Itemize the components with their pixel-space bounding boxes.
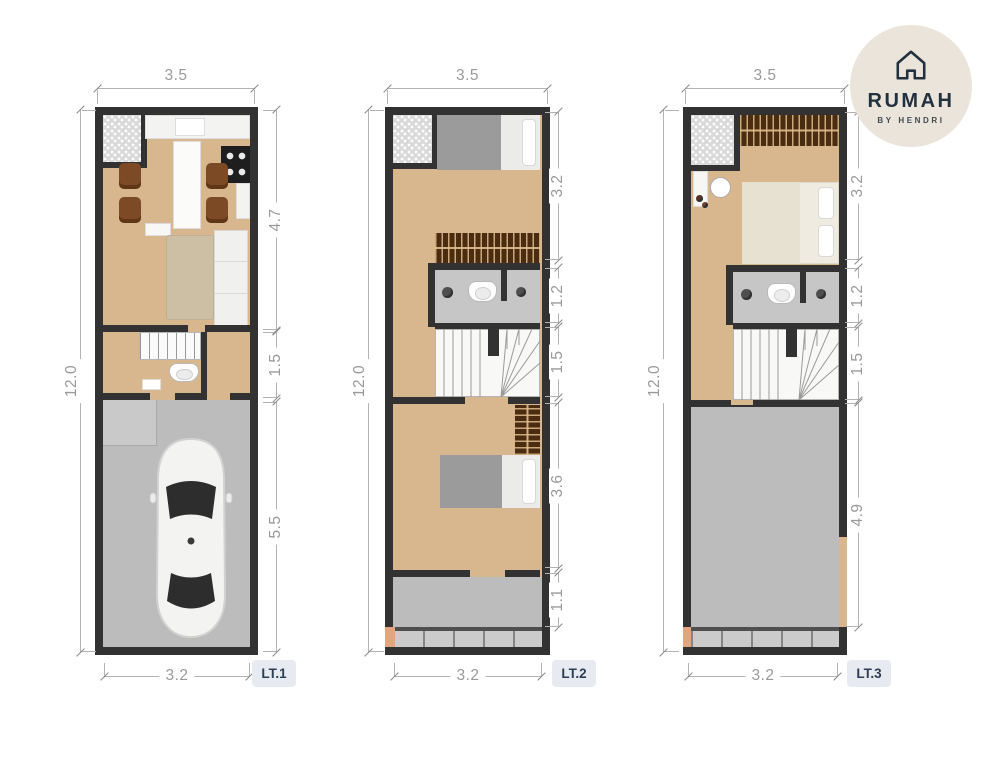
stairs — [435, 329, 540, 397]
dining-chair — [206, 163, 228, 189]
shower-partition — [800, 272, 806, 303]
dim-label: 3.2 — [450, 667, 485, 685]
bed-pillow — [522, 459, 536, 504]
interior-wall — [205, 325, 250, 332]
dim-right-lt2-b: 1.2 — [558, 268, 559, 323]
interior-wall — [753, 400, 839, 407]
interior-wall — [733, 265, 839, 272]
wardrobe — [515, 405, 540, 455]
floorplan-sheet: 3.5 3.5 3.5 3.2 3.2 3.2 12.0 12.0 12.0 4… — [0, 0, 1000, 763]
plant — [702, 202, 708, 208]
toilet — [767, 283, 796, 304]
interior-wall — [428, 263, 435, 327]
dim-left-lt2: 12.0 — [368, 110, 369, 652]
bed-blanket — [742, 182, 800, 264]
interior-wall — [393, 397, 465, 404]
dim-label: 3.5 — [164, 67, 187, 85]
bed-master — [742, 182, 839, 264]
dim-right-lt3-a: 3.2 — [858, 112, 859, 260]
balcony-floor — [393, 577, 542, 627]
dim-top-lt2: 3.5 — [387, 88, 548, 89]
dim-label: 5.5 — [267, 509, 285, 544]
dim-left-lt1: 12.0 — [80, 110, 81, 652]
dim-bottom-lt1: 3.2 — [104, 676, 250, 677]
dining-chair — [119, 197, 141, 223]
service-shaft — [393, 115, 438, 169]
sofa-chaise — [214, 230, 248, 326]
dim-label: 1.2 — [549, 278, 567, 313]
floor-badge-label: LT.1 — [261, 666, 286, 681]
dim-bottom-lt3: 3.2 — [688, 676, 838, 677]
kitchen-cabinet — [236, 183, 250, 219]
dim-label: 1.1 — [549, 582, 567, 617]
dim-label: 4.9 — [849, 497, 867, 532]
dim-label: 3.2 — [849, 168, 867, 203]
dim-right-lt3-c: 1.5 — [858, 327, 859, 400]
dim-label: 12.0 — [646, 359, 664, 403]
dim-right-lt1-b: 1.5 — [276, 332, 277, 398]
wardrobe — [435, 233, 540, 263]
stairs — [139, 332, 201, 360]
bath-sink — [442, 287, 453, 298]
balcony-planter — [385, 627, 395, 647]
dim-label: 3.6 — [549, 468, 567, 503]
terrace-railing — [691, 627, 839, 647]
interior-wall — [435, 263, 540, 270]
dim-label: 3.2 — [159, 667, 194, 685]
garage-wall — [230, 393, 250, 400]
interior-wall — [393, 570, 470, 577]
dim-top-lt1: 3.5 — [97, 88, 255, 89]
dim-right-lt2-c: 1.5 — [558, 327, 559, 397]
shower-head — [816, 289, 826, 299]
wardrobe — [740, 115, 839, 146]
bath-sink — [741, 289, 752, 300]
floor-badge-label: LT.2 — [561, 666, 586, 681]
dim-label: 12.0 — [351, 359, 369, 403]
bed — [437, 115, 540, 170]
side-table — [145, 223, 171, 236]
dining-chair — [119, 163, 141, 189]
floor-badge-lt1: LT.1 — [252, 660, 296, 687]
vanity-chair — [710, 177, 731, 198]
car — [149, 437, 233, 639]
dim-label: 4.7 — [267, 202, 285, 237]
floor-badge-lt2: LT.2 — [552, 660, 596, 687]
bed-pillow — [522, 119, 536, 166]
dim-right-lt1-c: 5.5 — [276, 402, 277, 652]
stairs — [733, 329, 839, 400]
bath-sink — [142, 379, 161, 390]
dim-label: 3.2 — [745, 667, 780, 685]
floorplan-lt2 — [385, 107, 550, 655]
dim-label: 12.0 — [63, 359, 81, 403]
floor-badge-lt3: LT.3 — [847, 660, 891, 687]
house-icon — [892, 48, 930, 87]
dim-label: 1.2 — [849, 278, 867, 313]
garage-wall — [175, 393, 207, 400]
dim-label: 3.5 — [753, 67, 776, 85]
dim-right-lt1-a: 4.7 — [276, 110, 277, 330]
dim-label: 3.5 — [456, 67, 479, 85]
dim-label: 3.2 — [549, 168, 567, 203]
bed-blanket — [440, 455, 502, 508]
floorplan-lt1 — [95, 107, 258, 655]
dining-table — [173, 141, 201, 229]
bed — [440, 455, 540, 508]
dim-left-lt3: 12.0 — [663, 110, 664, 652]
bed-pillow — [818, 225, 834, 257]
bed-blanket — [437, 115, 501, 170]
shower-partition — [501, 270, 507, 301]
balcony-railing — [393, 627, 542, 647]
dim-label: 1.5 — [549, 344, 567, 379]
dim-right-lt3-b: 1.2 — [858, 268, 859, 323]
dim-top-lt3: 3.5 — [685, 88, 845, 89]
interior-wall — [201, 332, 207, 394]
bed-pillow — [818, 187, 834, 219]
dim-right-lt2-a: 3.2 — [558, 112, 559, 260]
interior-wall — [103, 325, 188, 332]
brand-tagline: BY HENDRI — [877, 116, 944, 125]
dim-right-lt2-d: 3.6 — [558, 403, 559, 568]
plant — [696, 195, 703, 202]
interior-wall — [505, 570, 540, 577]
terrace-ledge — [839, 537, 847, 627]
brand-name: RUMAH — [868, 90, 955, 113]
terrace-planter — [683, 627, 691, 647]
roof-terrace-floor — [691, 407, 839, 627]
dim-right-lt3-d: 4.9 — [858, 403, 859, 627]
interior-wall — [726, 265, 733, 325]
dim-right-lt2-e: 1.1 — [558, 573, 559, 627]
dim-label: 1.5 — [849, 346, 867, 381]
service-shaft — [103, 115, 147, 168]
interior-wall — [691, 400, 731, 407]
toilet — [169, 363, 199, 382]
floorplan-lt3 — [683, 107, 847, 655]
dining-chair — [206, 197, 228, 223]
sofa — [166, 235, 214, 320]
service-shaft — [691, 115, 740, 171]
shower-head — [516, 287, 526, 297]
floor-badge-label: LT.3 — [856, 666, 881, 681]
dim-bottom-lt2: 3.2 — [394, 676, 542, 677]
interior-wall — [508, 397, 540, 404]
brand-logo: RUMAH BY HENDRI — [850, 25, 972, 147]
garage-wall — [103, 393, 150, 400]
toilet — [468, 281, 497, 302]
dim-label: 1.5 — [267, 347, 285, 382]
kitchen-sink — [175, 118, 205, 136]
